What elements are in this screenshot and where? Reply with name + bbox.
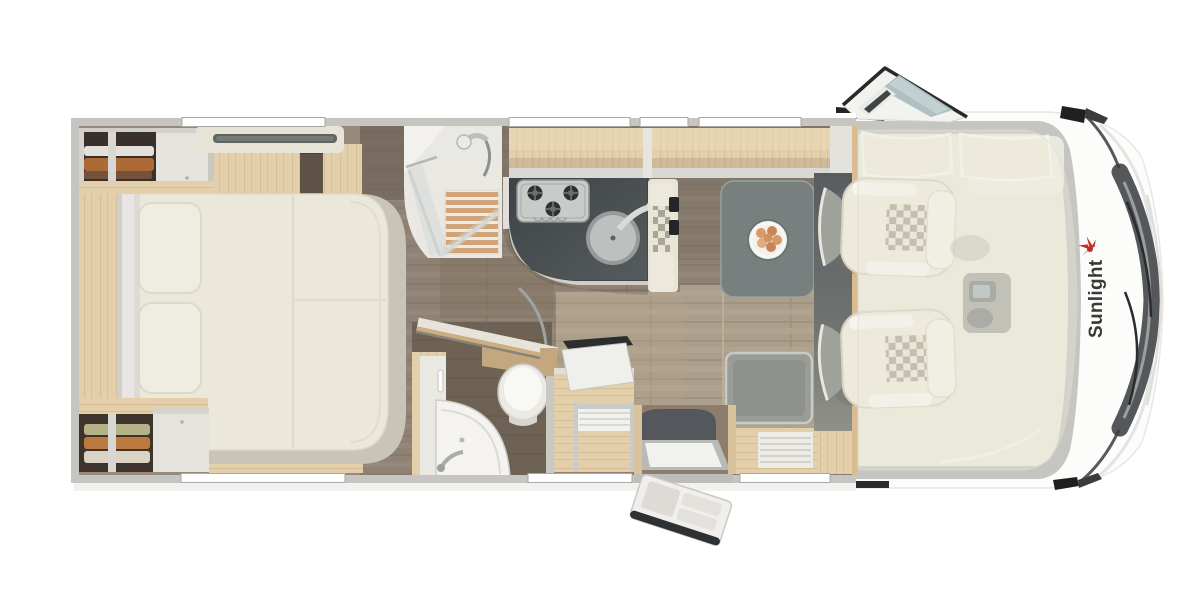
svg-text:Sunlight: Sunlight	[1086, 259, 1107, 338]
